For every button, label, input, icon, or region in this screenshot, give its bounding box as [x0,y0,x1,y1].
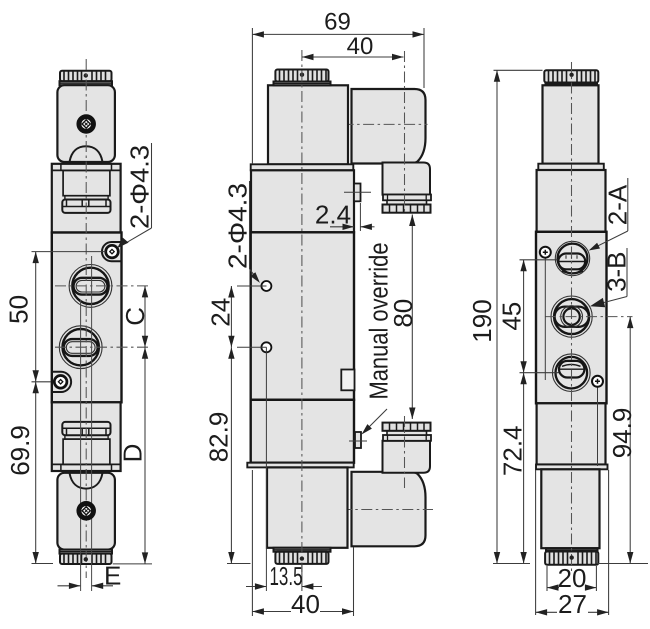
svg-text:69.9: 69.9 [5,425,35,476]
svg-text:2-Φ4.3: 2-Φ4.3 [125,145,155,229]
svg-text:E: E [104,561,121,591]
svg-text:72.4: 72.4 [497,425,527,476]
svg-text:82.9: 82.9 [204,412,234,463]
svg-text:69: 69 [324,9,351,36]
svg-text:2-Φ4.3: 2-Φ4.3 [223,183,253,269]
svg-text:45: 45 [496,302,526,331]
svg-text:40: 40 [347,33,374,60]
svg-text:40: 40 [291,589,320,619]
svg-text:C: C [120,307,150,326]
svg-text:190: 190 [467,299,497,342]
svg-text:27: 27 [558,589,587,619]
svg-text:24: 24 [206,298,236,327]
svg-text:D: D [118,444,148,463]
svg-text:13.5: 13.5 [270,561,303,591]
svg-text:50: 50 [4,295,34,324]
svg-text:2.4: 2.4 [315,200,351,230]
svg-text:94.9: 94.9 [607,408,637,459]
svg-text:80: 80 [388,299,418,328]
